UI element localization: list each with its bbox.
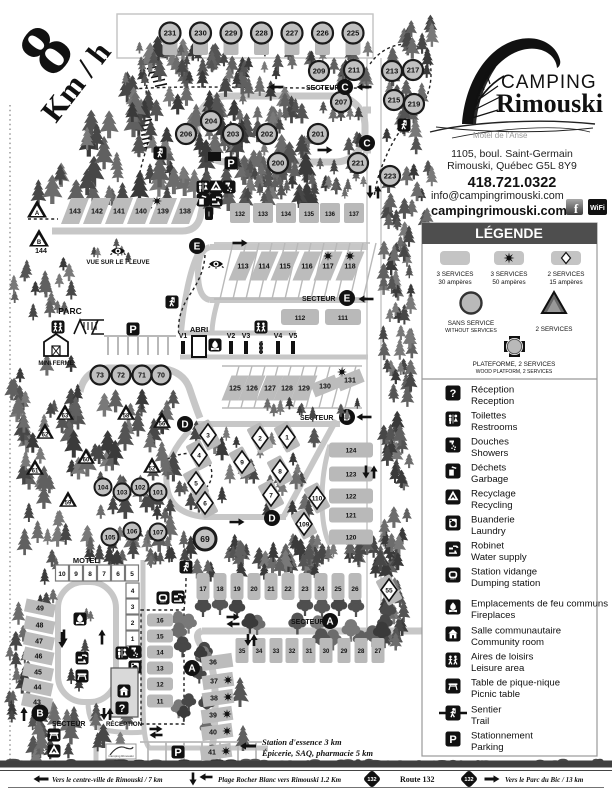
svg-text:230: 230 xyxy=(194,29,207,38)
svg-text:55: 55 xyxy=(385,587,393,594)
svg-text:59: 59 xyxy=(65,501,72,507)
svg-text:E: E xyxy=(344,293,351,304)
svg-text:7: 7 xyxy=(269,492,273,499)
svg-text:Robinet: Robinet xyxy=(471,541,504,552)
svg-text:207: 207 xyxy=(335,98,348,107)
svg-text:125: 125 xyxy=(229,386,241,393)
svg-text:Plage Rocher Blanc vers Rimous: Plage Rocher Blanc vers Rimouski 1.2 Km xyxy=(218,776,342,784)
svg-text:2 SERVICES: 2 SERVICES xyxy=(536,326,573,333)
svg-text:D: D xyxy=(181,419,188,430)
svg-text:114: 114 xyxy=(258,264,269,271)
svg-text:127: 127 xyxy=(264,386,276,393)
svg-text:14: 14 xyxy=(156,650,164,657)
svg-text:111: 111 xyxy=(338,315,349,322)
svg-text:V3: V3 xyxy=(242,333,251,340)
svg-text:6: 6 xyxy=(203,500,207,507)
svg-text:227: 227 xyxy=(286,29,299,38)
svg-text:71: 71 xyxy=(138,373,146,380)
svg-text:6: 6 xyxy=(116,571,120,578)
svg-text:10: 10 xyxy=(58,571,66,578)
svg-text:1: 1 xyxy=(131,636,135,643)
svg-text:136: 136 xyxy=(325,212,336,218)
svg-text:MINI FERME: MINI FERME xyxy=(38,361,73,367)
svg-text:126: 126 xyxy=(246,386,258,393)
svg-text:P: P xyxy=(227,158,234,170)
svg-text:C: C xyxy=(363,138,370,149)
svg-text:139: 139 xyxy=(157,209,169,216)
svg-text:110: 110 xyxy=(312,495,323,502)
svg-text:D: D xyxy=(268,513,275,524)
svg-text:38: 38 xyxy=(210,696,218,703)
svg-text:47: 47 xyxy=(35,639,43,646)
svg-text:4: 4 xyxy=(197,452,201,459)
svg-text:28: 28 xyxy=(358,649,365,655)
svg-text:69: 69 xyxy=(200,534,210,544)
svg-text:SANS SERVICE: SANS SERVICE xyxy=(448,320,494,327)
svg-text:129: 129 xyxy=(298,386,310,393)
svg-text:115: 115 xyxy=(279,264,290,271)
svg-text:45: 45 xyxy=(34,670,42,677)
svg-text:V4: V4 xyxy=(274,333,283,340)
svg-text:17: 17 xyxy=(199,586,207,593)
svg-text:109: 109 xyxy=(299,521,310,528)
svg-text:VUE SUR LE FLEUVE: VUE SUR LE FLEUVE xyxy=(86,259,149,266)
svg-text:231: 231 xyxy=(164,29,177,38)
svg-text:202: 202 xyxy=(261,130,274,139)
svg-text:134: 134 xyxy=(281,212,292,218)
svg-text:Dumping station: Dumping station xyxy=(471,578,540,589)
svg-text:sani: sani xyxy=(450,577,456,581)
svg-text:WITHOUT SERVICES: WITHOUT SERVICES xyxy=(445,328,497,334)
svg-text:Emplacements de feu communs: Emplacements de feu communs xyxy=(471,599,608,610)
svg-text:5: 5 xyxy=(130,571,134,578)
svg-text:?: ? xyxy=(450,388,457,400)
svg-text:418.721.0322: 418.721.0322 xyxy=(468,175,557,191)
svg-text:143: 143 xyxy=(69,209,81,216)
svg-text:213: 213 xyxy=(386,67,399,76)
svg-text:58: 58 xyxy=(123,414,130,420)
svg-text:211: 211 xyxy=(348,66,360,75)
svg-text:39: 39 xyxy=(209,713,217,720)
svg-text:8: 8 xyxy=(278,468,282,475)
svg-text:116: 116 xyxy=(301,264,312,271)
svg-text:73: 73 xyxy=(96,373,104,380)
svg-text:C: C xyxy=(341,82,348,93)
svg-text:4: 4 xyxy=(131,588,135,595)
svg-text:106: 106 xyxy=(127,528,138,535)
svg-text:113: 113 xyxy=(237,264,248,271)
svg-text:LÉGENDE: LÉGENDE xyxy=(475,225,543,241)
svg-text:107: 107 xyxy=(153,529,164,536)
svg-text:MOTEL: MOTEL xyxy=(73,556,100,565)
svg-text:Rimouski, Québec G5L 8Y9: Rimouski, Québec G5L 8Y9 xyxy=(447,160,577,172)
svg-text:40: 40 xyxy=(209,730,217,737)
svg-text:1: 1 xyxy=(285,434,289,441)
svg-text:2: 2 xyxy=(258,435,262,442)
svg-text:Trail: Trail xyxy=(471,716,489,727)
svg-text:Showers: Showers xyxy=(471,448,509,459)
svg-text:A: A xyxy=(188,663,195,674)
svg-text:35: 35 xyxy=(239,649,246,655)
svg-text:12: 12 xyxy=(156,682,164,689)
svg-text:WOOD PLATFORM, 2 SERVICES: WOOD PLATFORM, 2 SERVICES xyxy=(476,369,553,375)
svg-text:Table de pique-nique: Table de pique-nique xyxy=(471,678,560,689)
svg-text:Toilettes: Toilettes xyxy=(471,411,506,422)
svg-text:3 SERVICES: 3 SERVICES xyxy=(437,271,474,278)
svg-text:56: 56 xyxy=(159,422,166,428)
svg-text:3: 3 xyxy=(206,432,210,439)
svg-text:26: 26 xyxy=(351,586,359,593)
svg-text:62: 62 xyxy=(42,433,49,439)
svg-text:18: 18 xyxy=(216,586,224,593)
svg-text:Garbage: Garbage xyxy=(471,474,508,485)
svg-text:B: B xyxy=(37,240,42,246)
svg-text:Vers le Parc du Bic / 13 km: Vers le Parc du Bic / 13 km xyxy=(505,776,584,784)
svg-text:121: 121 xyxy=(346,513,357,520)
svg-text:132: 132 xyxy=(235,212,246,218)
svg-text:Recyclage: Recyclage xyxy=(471,489,516,500)
svg-text:102: 102 xyxy=(135,484,146,491)
svg-text:140: 140 xyxy=(135,209,147,216)
svg-text:229: 229 xyxy=(225,29,238,38)
svg-text:Épicerie, SAQ, pharmacie 5 km: Épicerie, SAQ, pharmacie 5 km xyxy=(261,748,373,758)
svg-text:Vers le centre-ville de Rimous: Vers le centre-ville de Rimouski / 7 km xyxy=(52,776,163,784)
svg-text:Camping Rimouski: Camping Rimouski xyxy=(108,754,134,758)
svg-text:223: 223 xyxy=(384,172,397,181)
svg-text:21: 21 xyxy=(267,586,275,593)
svg-text:228: 228 xyxy=(255,29,268,38)
svg-text:203: 203 xyxy=(227,130,240,139)
svg-text:Community room: Community room xyxy=(471,637,544,648)
svg-text:9: 9 xyxy=(74,571,78,578)
svg-text:200: 200 xyxy=(272,159,285,168)
svg-text:Picnic table: Picnic table xyxy=(471,689,520,700)
svg-text:128: 128 xyxy=(281,386,293,393)
svg-text:16: 16 xyxy=(156,618,164,625)
svg-text:124: 124 xyxy=(346,448,357,455)
svg-text:sani: sani xyxy=(160,600,166,604)
svg-text:campingrimouski.com: campingrimouski.com xyxy=(431,203,567,218)
svg-text:204: 204 xyxy=(205,117,218,126)
svg-text:Salle communautaire: Salle communautaire xyxy=(471,626,561,637)
svg-text:209: 209 xyxy=(313,67,326,76)
svg-text:117: 117 xyxy=(322,264,333,271)
svg-text:B: B xyxy=(36,708,43,719)
svg-text:SECTEUR: SECTEUR xyxy=(302,296,335,303)
svg-text:2 SERVICES: 2 SERVICES xyxy=(548,271,585,278)
svg-text:A: A xyxy=(326,616,333,627)
svg-text:WiFi: WiFi xyxy=(590,205,605,212)
svg-text:32: 32 xyxy=(289,649,296,655)
svg-text:131: 131 xyxy=(344,378,356,385)
svg-text:33: 33 xyxy=(273,649,280,655)
svg-text:217: 217 xyxy=(407,66,420,75)
svg-text:Route 132: Route 132 xyxy=(400,775,434,784)
svg-text:P: P xyxy=(174,747,181,759)
svg-text:SECTEUR: SECTEUR xyxy=(291,619,324,626)
svg-text:Motel de l'Anse: Motel de l'Anse xyxy=(473,131,528,140)
svg-text:Douches: Douches xyxy=(471,437,509,448)
svg-text:1105, boul. Saint-Germain: 1105, boul. Saint-Germain xyxy=(451,148,573,160)
svg-text:RÉCEPTION: RÉCEPTION xyxy=(106,720,143,728)
svg-text:Buanderie: Buanderie xyxy=(471,515,515,526)
svg-text:PARC: PARC xyxy=(58,306,81,316)
svg-text:72: 72 xyxy=(117,373,125,380)
svg-text:30: 30 xyxy=(323,649,330,655)
svg-text:63: 63 xyxy=(62,414,69,420)
svg-text:103: 103 xyxy=(117,489,128,496)
svg-text:70: 70 xyxy=(157,373,165,380)
svg-text:112: 112 xyxy=(295,315,306,322)
svg-text:25: 25 xyxy=(334,586,342,593)
svg-text:118: 118 xyxy=(344,264,355,271)
svg-text:2: 2 xyxy=(131,620,135,627)
svg-text:3 SERVICES: 3 SERVICES xyxy=(491,271,528,278)
svg-text:Reception: Reception xyxy=(471,396,514,407)
svg-text:201: 201 xyxy=(312,130,325,139)
svg-text:19: 19 xyxy=(233,586,241,593)
svg-text:Leisure area: Leisure area xyxy=(471,663,525,674)
svg-text:48: 48 xyxy=(36,623,44,630)
svg-text:22: 22 xyxy=(284,586,292,593)
svg-text:44: 44 xyxy=(34,685,42,692)
svg-text:219: 219 xyxy=(408,100,421,109)
svg-text:61: 61 xyxy=(32,469,39,475)
svg-text:34: 34 xyxy=(256,649,263,655)
svg-text:132: 132 xyxy=(464,777,473,783)
svg-text:123: 123 xyxy=(346,472,357,479)
svg-text:A: A xyxy=(35,211,40,217)
svg-text:49: 49 xyxy=(36,606,44,613)
svg-text:PLATEFORME, 2 SERVICES: PLATEFORME, 2 SERVICES xyxy=(473,361,556,368)
svg-text:?: ? xyxy=(119,703,126,715)
svg-text:Déchets: Déchets xyxy=(471,463,506,474)
svg-text:141: 141 xyxy=(113,209,125,216)
svg-text:V2: V2 xyxy=(227,333,236,340)
svg-text:Rimouski: Rimouski xyxy=(496,89,603,118)
svg-text:130: 130 xyxy=(319,384,331,391)
svg-text:24: 24 xyxy=(317,586,325,593)
svg-text:132: 132 xyxy=(367,777,376,783)
svg-text:7: 7 xyxy=(102,571,106,578)
svg-text:5: 5 xyxy=(194,480,198,487)
svg-text:29: 29 xyxy=(341,649,348,655)
svg-text:9: 9 xyxy=(240,459,244,466)
svg-text:138: 138 xyxy=(179,209,191,216)
svg-text:Station vidange: Station vidange xyxy=(471,567,537,578)
svg-text:ABRI: ABRI xyxy=(190,325,208,334)
svg-text:30 ampères: 30 ampères xyxy=(438,279,471,286)
svg-text:122: 122 xyxy=(346,494,357,501)
svg-text:144: 144 xyxy=(35,248,47,255)
svg-text:SECTEUR: SECTEUR xyxy=(306,85,339,92)
svg-text:46: 46 xyxy=(35,654,43,661)
svg-text:101: 101 xyxy=(153,489,164,496)
svg-text:226: 226 xyxy=(316,29,329,38)
svg-text:221: 221 xyxy=(352,159,365,168)
svg-text:V5: V5 xyxy=(289,333,298,340)
svg-text:P: P xyxy=(129,324,136,336)
svg-text:135: 135 xyxy=(304,212,315,218)
svg-text:20: 20 xyxy=(250,586,258,593)
svg-text:206: 206 xyxy=(180,130,193,139)
svg-text:Stationnement: Stationnement xyxy=(471,731,533,742)
svg-text:142: 142 xyxy=(91,209,103,216)
svg-text:41: 41 xyxy=(208,750,216,757)
svg-text:I: I xyxy=(208,212,210,219)
svg-text:133: 133 xyxy=(258,212,269,218)
svg-text:15: 15 xyxy=(156,634,164,641)
svg-text:50 ampères: 50 ampères xyxy=(492,279,525,286)
svg-text:120: 120 xyxy=(346,535,357,542)
svg-text:Fireplaces: Fireplaces xyxy=(471,610,515,621)
svg-text:3: 3 xyxy=(131,604,135,611)
svg-text:Aires de loisirs: Aires de loisirs xyxy=(471,652,534,663)
svg-text:31: 31 xyxy=(306,649,313,655)
svg-text:36: 36 xyxy=(209,660,217,667)
svg-text:info@campingrimouski.com: info@campingrimouski.com xyxy=(431,190,564,202)
svg-text:Restrooms: Restrooms xyxy=(471,422,518,433)
svg-text:Station d'essence 3 km: Station d'essence 3 km xyxy=(262,737,342,747)
svg-text:52: 52 xyxy=(149,467,156,473)
svg-text:215: 215 xyxy=(388,96,401,105)
svg-text:15 ampères: 15 ampères xyxy=(549,279,582,286)
svg-text:23: 23 xyxy=(301,586,309,593)
svg-text:SECTEUR: SECTEUR xyxy=(52,721,85,728)
svg-text:225: 225 xyxy=(347,29,360,38)
svg-text:f: f xyxy=(574,201,579,216)
svg-text:P: P xyxy=(449,734,456,746)
svg-text:Sentier: Sentier xyxy=(471,705,502,716)
svg-text:105: 105 xyxy=(105,534,116,541)
svg-text:137: 137 xyxy=(349,212,360,218)
svg-text:60: 60 xyxy=(83,458,90,464)
svg-text:Réception: Réception xyxy=(471,385,514,396)
svg-text:Parking: Parking xyxy=(471,742,504,753)
svg-text:37: 37 xyxy=(210,679,218,686)
svg-text:11: 11 xyxy=(157,699,164,706)
svg-text:Laundry: Laundry xyxy=(471,526,506,537)
svg-text:8: 8 xyxy=(88,571,92,578)
svg-text:27: 27 xyxy=(375,649,382,655)
svg-text:104: 104 xyxy=(98,484,109,491)
svg-text:13: 13 xyxy=(156,666,164,673)
svg-text:Recycling: Recycling xyxy=(471,500,513,511)
svg-text:E: E xyxy=(194,241,201,252)
svg-text:Water supply: Water supply xyxy=(471,552,527,563)
svg-text:V1: V1 xyxy=(179,333,188,340)
